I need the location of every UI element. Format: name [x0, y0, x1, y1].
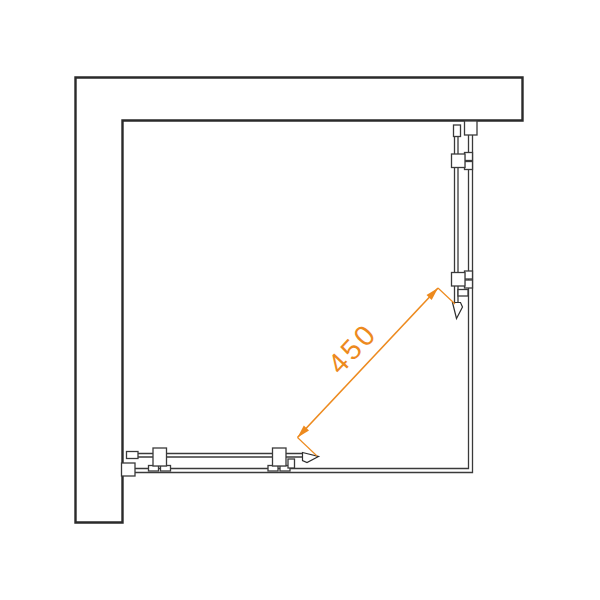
bottom-roller-bracket — [273, 448, 287, 466]
side-door-edge-tip — [453, 303, 463, 319]
dimension-label: 450 — [321, 317, 383, 380]
track-outer-line — [135, 135, 473, 473]
side-guide-tab — [458, 290, 468, 297]
side-roller-pad — [465, 162, 473, 170]
bottom-wall-mount-bracket — [122, 463, 136, 476]
side-roller-pad — [465, 271, 473, 279]
side-wall-mount-bracket — [465, 121, 478, 135]
side-roller-pad — [465, 153, 473, 161]
bottom-door-cap — [127, 452, 139, 459]
drawing-canvas: 450 — [0, 0, 600, 600]
side-roller-bracket — [452, 273, 466, 287]
bottom-roller-bracket — [153, 448, 167, 466]
side-door-hardware — [452, 121, 478, 296]
track-inner-line — [135, 135, 469, 469]
side-roller-bracket — [452, 154, 466, 168]
enclosure-plan-diagram: 450 — [0, 0, 600, 600]
side-door-cap — [454, 125, 461, 137]
fixed-frame-track — [135, 135, 473, 473]
dimension-annotation: 450 — [298, 288, 456, 456]
bottom-guide-tab — [288, 459, 295, 468]
bottom-door-hardware — [122, 448, 295, 476]
bottom-door-edge-tip — [303, 453, 319, 463]
extension-line-end — [438, 288, 455, 304]
side-roller-pad — [465, 280, 473, 288]
wall-outline — [76, 78, 523, 523]
dimension-line — [298, 288, 439, 438]
wall-structure — [76, 78, 523, 523]
